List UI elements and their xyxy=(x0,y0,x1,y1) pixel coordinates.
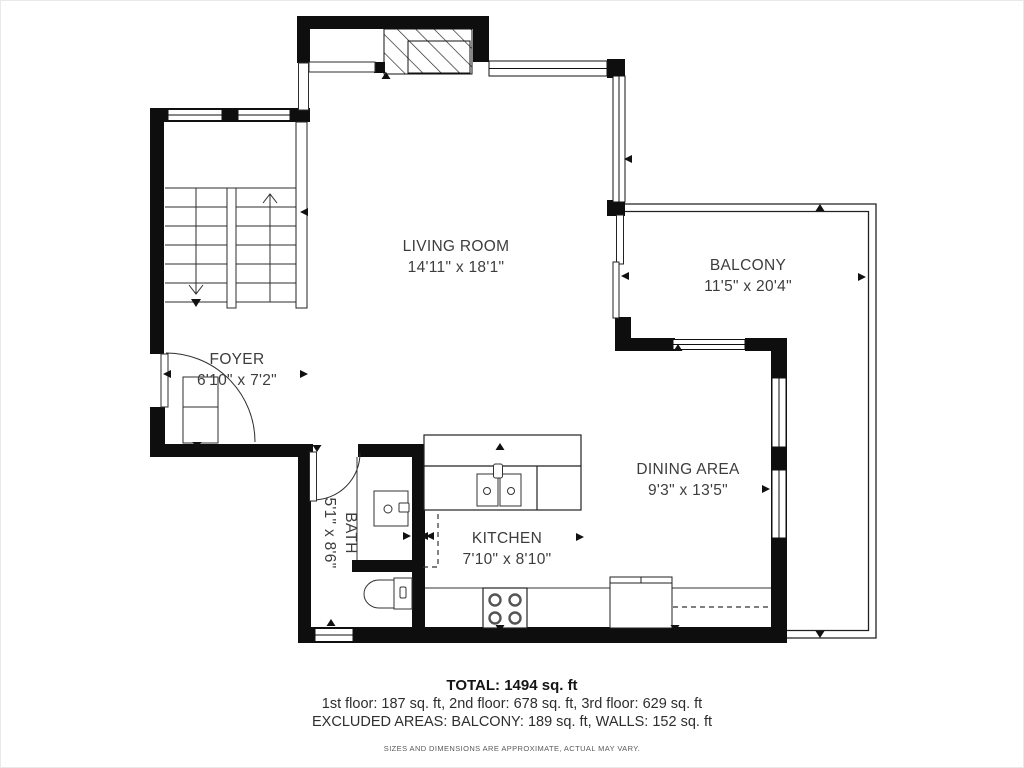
room-name: DINING AREA xyxy=(636,459,739,480)
arrow-down-icon xyxy=(816,631,825,638)
room-name: BATH xyxy=(340,497,361,568)
chimney-hatch xyxy=(384,29,472,74)
wall-openings xyxy=(299,62,376,110)
floor-areas: 1st floor: 187 sq. ft, 2nd floor: 678 sq… xyxy=(0,695,1024,713)
arrow-right-icon xyxy=(858,273,866,281)
room-name: LIVING ROOM xyxy=(403,236,510,257)
window xyxy=(613,76,625,202)
window xyxy=(772,378,786,447)
room-label-foyer: FOYER 6'10" x 7'2" xyxy=(197,349,277,391)
window xyxy=(489,61,607,76)
room-label-dining-area: DINING AREA 9'3" x 13'5" xyxy=(636,459,739,501)
room-dims: 6'10" x 7'2" xyxy=(197,370,277,391)
room-dims: 14'11" x 18'1" xyxy=(403,257,510,278)
total-area: TOTAL: 1494 sq. ft xyxy=(0,676,1024,695)
arrow-right-icon xyxy=(403,532,411,540)
room-label-living-room: LIVING ROOM 14'11" x 18'1" xyxy=(403,236,510,278)
room-label-kitchen: KITCHEN 7'10" x 8'10" xyxy=(463,528,552,570)
arrow-right-icon xyxy=(576,533,584,541)
room-dims: 7'10" x 8'10" xyxy=(463,549,552,570)
stairs-down-arrow xyxy=(189,188,203,307)
window xyxy=(238,110,290,121)
room-label-balcony: BALCONY 11'5" x 20'4" xyxy=(704,255,792,297)
toilet xyxy=(364,578,412,609)
room-dims: 5'1" x 8'6" xyxy=(319,497,340,568)
room-label-bath: BATH 5'1" x 8'6" xyxy=(319,497,361,568)
arrow-right-icon xyxy=(762,485,770,493)
area-summary: TOTAL: 1494 sq. ft 1st floor: 187 sq. ft… xyxy=(0,676,1024,753)
bath-door xyxy=(310,452,361,501)
room-dims: 9'3" x 13'5" xyxy=(636,480,739,501)
stairs-up-arrow xyxy=(263,194,277,302)
kitchen-island xyxy=(424,435,581,510)
room-dims: 11'5" x 20'4" xyxy=(704,276,792,297)
arrow-up-icon xyxy=(816,204,825,211)
arrow-down-icon xyxy=(313,445,322,452)
floor-plan-drawing xyxy=(0,0,1024,768)
window xyxy=(673,340,745,350)
arrow-right-icon xyxy=(300,370,308,378)
arrow-left-icon xyxy=(621,272,629,280)
arrow-up-icon xyxy=(327,619,336,626)
stove xyxy=(483,588,527,628)
floor-plan-page: LIVING ROOM 14'11" x 18'1" BALCONY 11'5"… xyxy=(0,0,1024,768)
room-name: KITCHEN xyxy=(463,528,552,549)
window xyxy=(168,110,222,121)
room-name: BALCONY xyxy=(704,255,792,276)
excluded-areas: EXCLUDED AREAS: BALCONY: 189 sq. ft, WAL… xyxy=(0,713,1024,731)
refrigerator xyxy=(610,577,672,628)
bath-vanity-sink xyxy=(374,491,409,526)
sliding-door xyxy=(613,215,624,318)
stairs xyxy=(165,122,307,308)
window xyxy=(772,470,786,538)
window xyxy=(315,629,353,642)
disclaimer: SIZES AND DIMENSIONS ARE APPROXIMATE, AC… xyxy=(0,744,1024,753)
room-name: FOYER xyxy=(197,349,277,370)
